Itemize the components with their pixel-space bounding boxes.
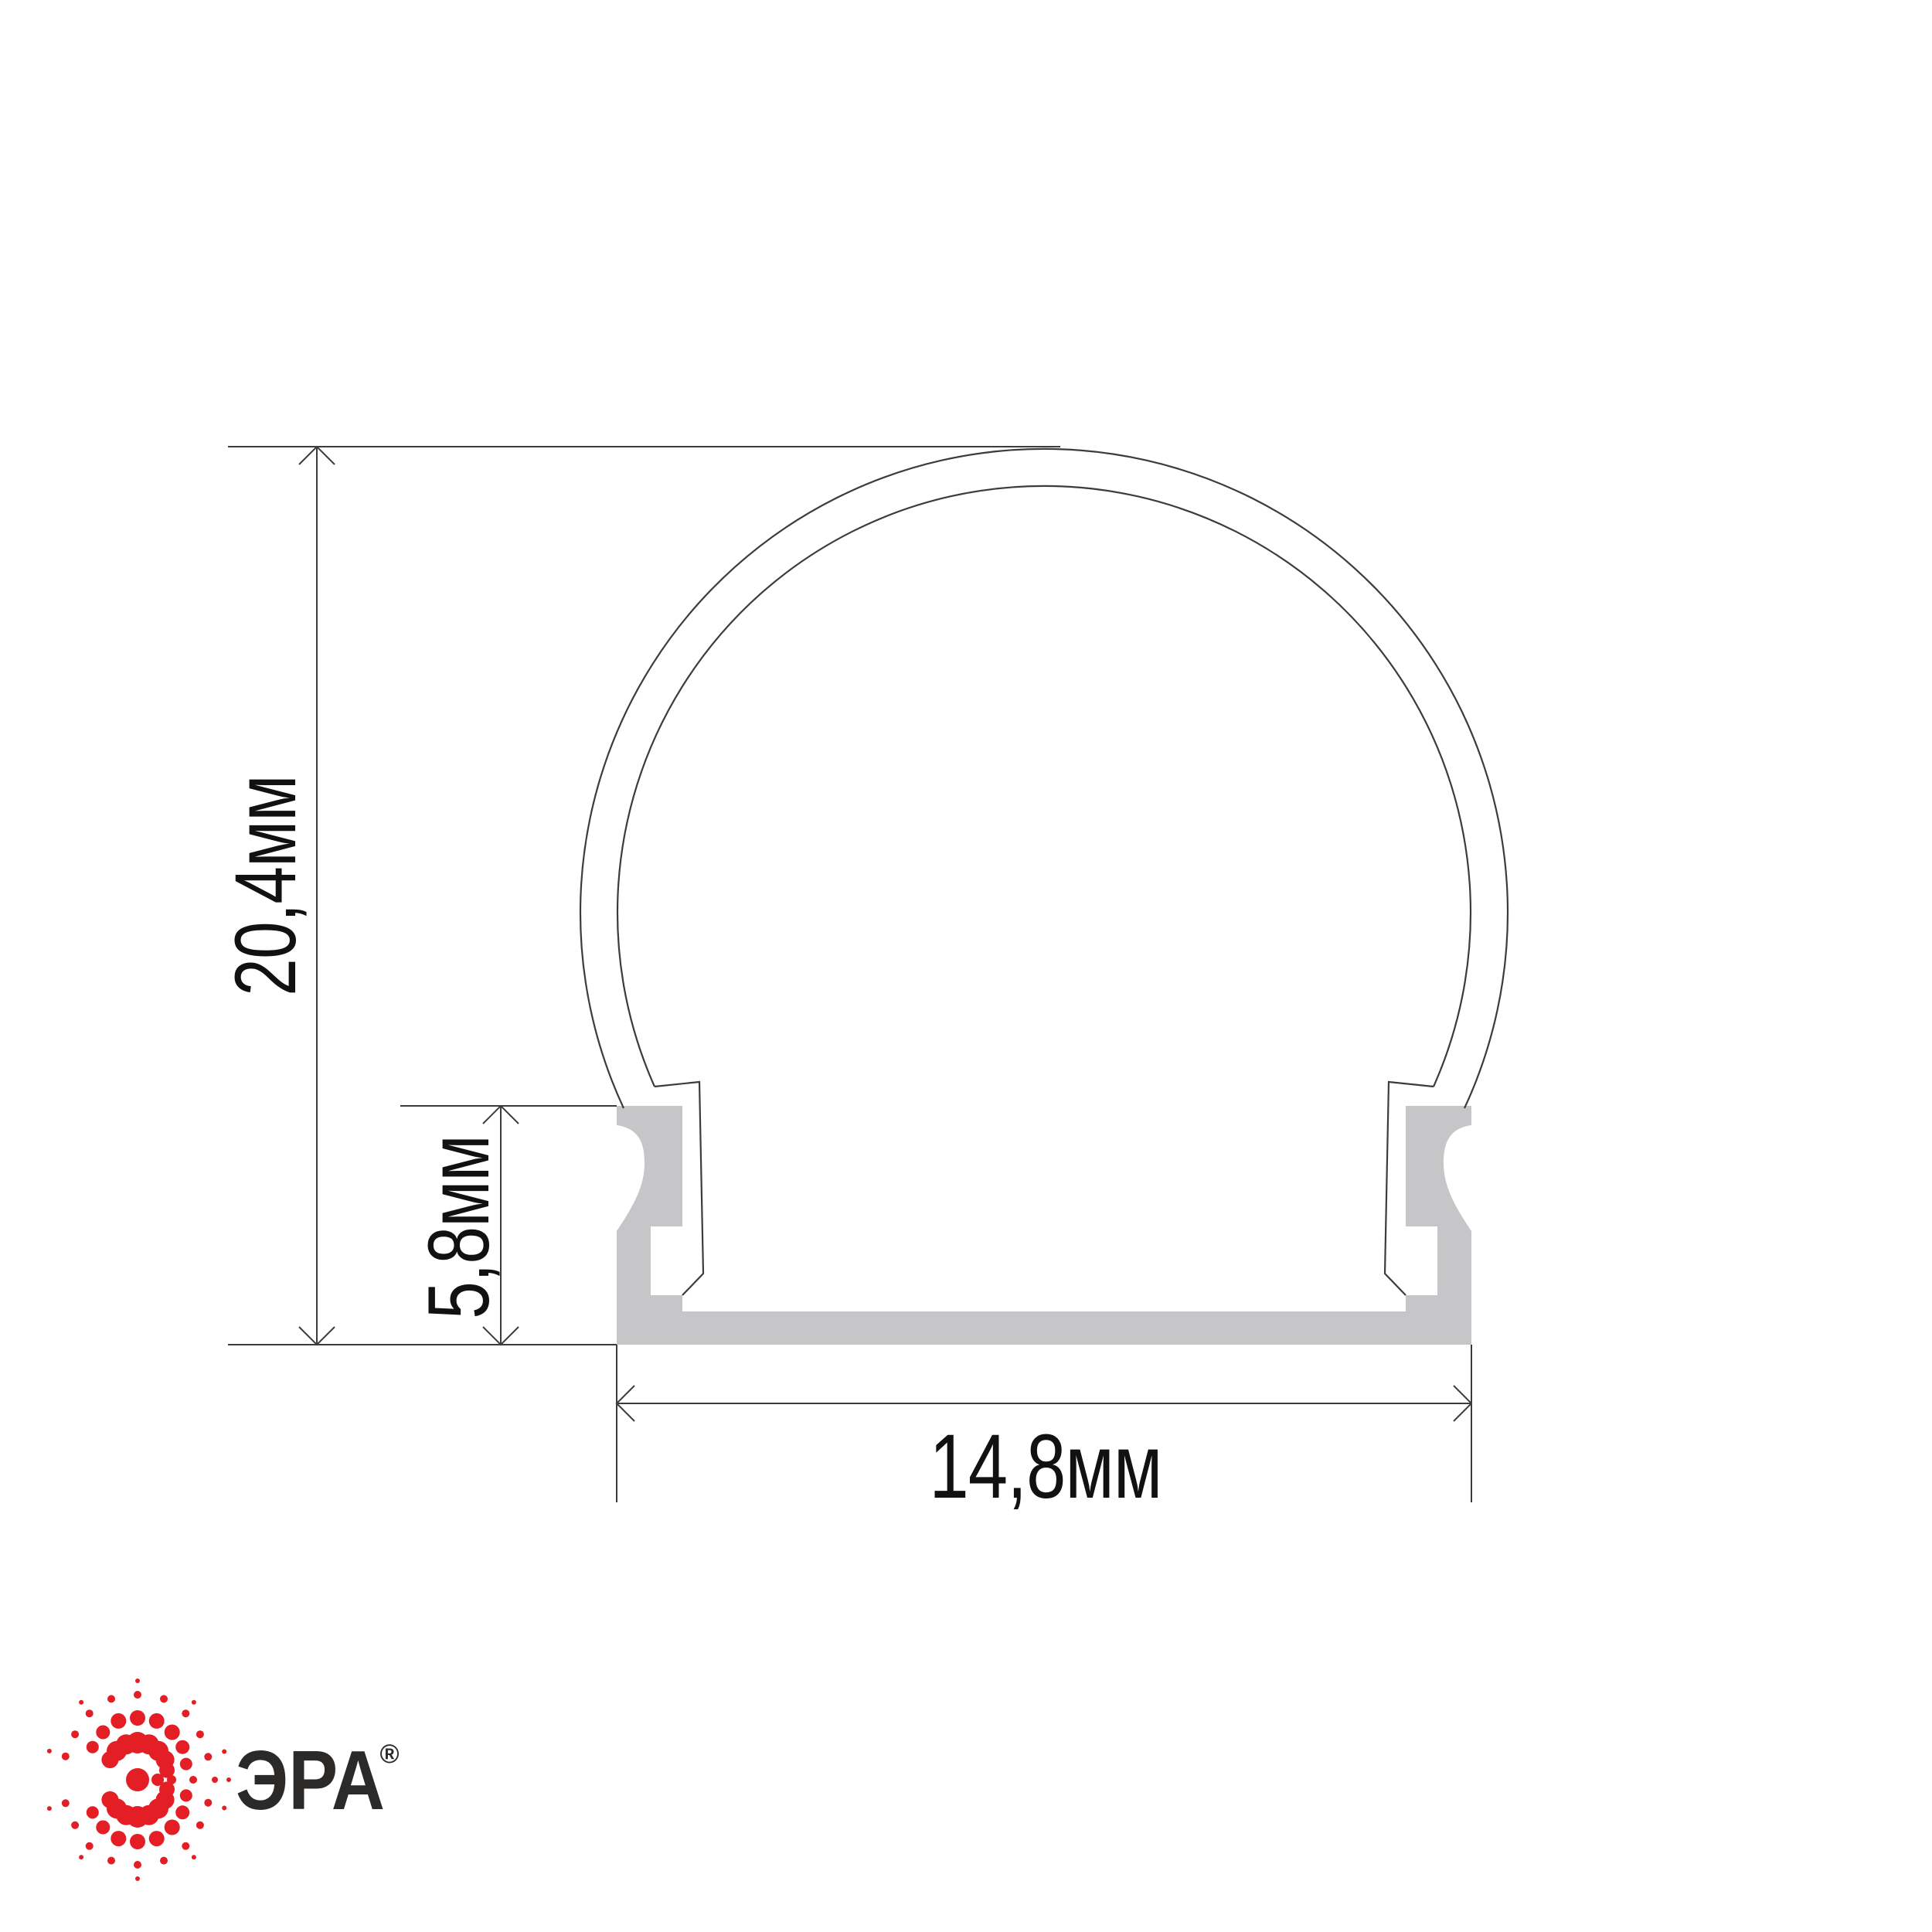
logo-dot (134, 1691, 141, 1699)
logo-dot (79, 1855, 83, 1859)
logo-dot (222, 1806, 226, 1811)
registered-trademark-icon: ® (379, 1740, 399, 1769)
logo-dot (196, 1821, 204, 1829)
logo-dot (160, 1857, 168, 1865)
logo-dot (180, 1789, 192, 1801)
logo-dot (175, 1805, 189, 1819)
logo-dot (222, 1750, 226, 1754)
era-logo-wordmark: ЭРА (236, 1733, 385, 1827)
logo-dot (86, 1842, 94, 1850)
logo-dot (182, 1709, 189, 1717)
logo-dot (101, 1751, 118, 1768)
base-height-dimension-label: 5,8мм (411, 1135, 508, 1319)
logo-dot (87, 1741, 99, 1753)
logo-dot (175, 1740, 189, 1754)
logo-dot (111, 1713, 126, 1729)
logo-dot (135, 1679, 140, 1683)
logo-dot (62, 1753, 70, 1760)
led-profile-dimension-drawing: 20,4мм 5,8мм 14,8мм ЭРА ® (0, 0, 1932, 1932)
width-dimension-label: 14,8мм (930, 1416, 1162, 1518)
logo-dot (62, 1799, 70, 1807)
logo-dot (196, 1730, 204, 1738)
logo-dot (86, 1709, 94, 1717)
logo-dot (47, 1806, 52, 1811)
era-logo: ЭРА ® (47, 1679, 400, 1881)
logo-dot (192, 1855, 196, 1859)
logo-dot (130, 1834, 145, 1849)
logo-dot (180, 1758, 192, 1770)
logo-dot (87, 1806, 99, 1818)
logo-dot (165, 1820, 180, 1835)
logo-dot (149, 1831, 165, 1846)
dimension-labels: 20,4мм 5,8мм 14,8мм (218, 775, 1162, 1517)
logo-dot (47, 1749, 52, 1753)
diffuser-outline (580, 449, 1508, 1295)
logo-dot (79, 1700, 83, 1705)
aluminum-profile-body (617, 1106, 1471, 1345)
logo-dot (204, 1799, 212, 1807)
diffuser-outer-arc (580, 449, 1508, 1108)
logo-dot (96, 1726, 110, 1740)
logo-dot (111, 1831, 126, 1846)
drawing-canvas: 20,4мм 5,8мм 14,8мм ЭРА ® (0, 0, 1932, 1932)
logo-dot (101, 1791, 118, 1808)
logo-dot (71, 1821, 79, 1829)
logo-dot (126, 1768, 149, 1791)
logo-dot (130, 1710, 145, 1726)
logo-dot (204, 1753, 212, 1760)
logo-dot (149, 1713, 165, 1729)
diffuser-inner-arc (617, 486, 1471, 1087)
logo-dot (134, 1861, 141, 1869)
logo-dot (226, 1777, 231, 1782)
logo-dot (182, 1842, 189, 1850)
logo-dot (212, 1777, 218, 1783)
logo-dot (160, 1695, 168, 1702)
height-dimension-label: 20,4мм (218, 775, 315, 995)
era-logo-sunburst-icon (47, 1679, 231, 1881)
logo-dot (189, 1776, 197, 1784)
logo-dot (107, 1695, 115, 1702)
profile-cross-section (617, 1106, 1471, 1345)
logo-dot (96, 1821, 110, 1835)
logo-dot (107, 1857, 115, 1865)
logo-dot (71, 1730, 79, 1738)
logo-dot (165, 1725, 180, 1740)
logo-dot (135, 1876, 140, 1881)
logo-dot (192, 1700, 196, 1705)
